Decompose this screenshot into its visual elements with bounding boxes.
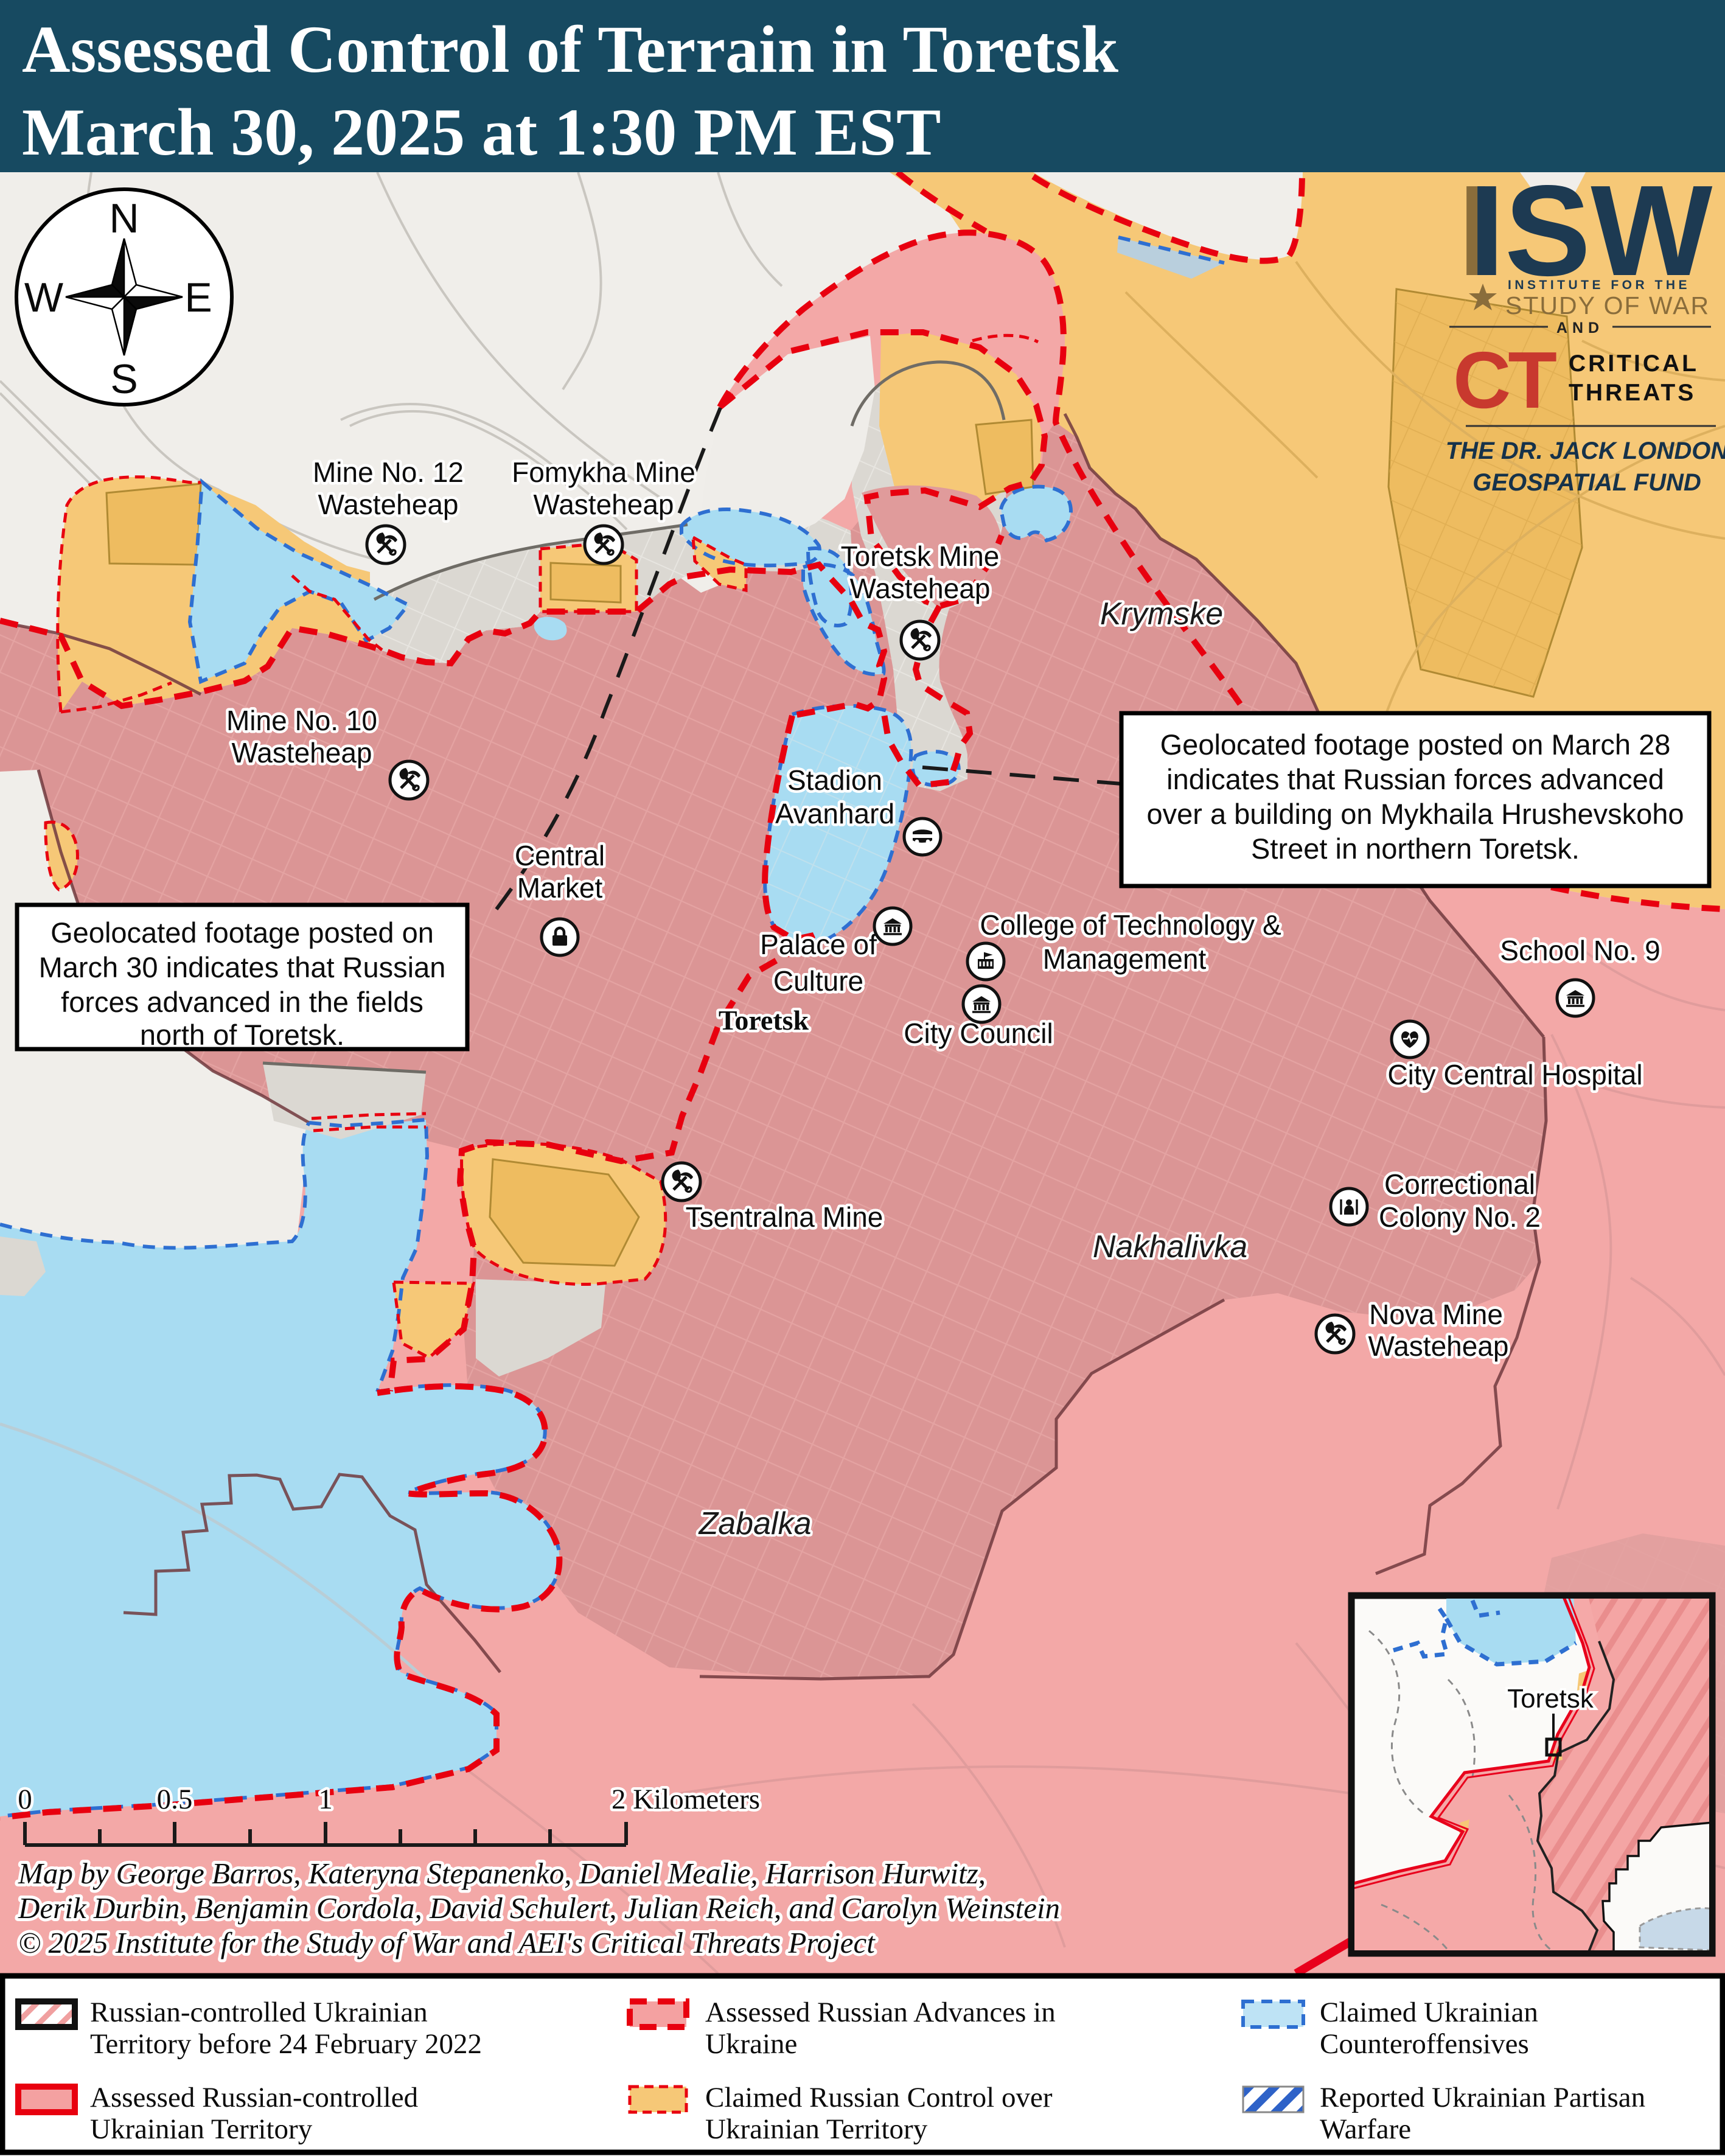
svg-text:Claimed Ukrainian: Claimed Ukrainian	[1320, 1997, 1538, 2028]
svg-text:Geolocated footage posted on M: Geolocated footage posted on March 28	[1160, 728, 1671, 761]
svg-text:Fomykha Mine: Fomykha Mine	[512, 456, 695, 488]
svg-text:GEOSPATIAL FUND: GEOSPATIAL FUND	[1472, 469, 1701, 496]
svg-text:Avanhard: Avanhard	[775, 798, 894, 829]
svg-text:Market: Market	[517, 872, 603, 904]
svg-text:Derik Durbin, Benjamin Cordola: Derik Durbin, Benjamin Cordola, David Sc…	[18, 1891, 1060, 1925]
svg-text:Warfare: Warfare	[1320, 2113, 1411, 2145]
svg-text:Assessed Russian Advances in: Assessed Russian Advances in	[705, 1997, 1056, 2028]
svg-text:© 2025 Institute for the Study: © 2025 Institute for the Study of War an…	[18, 1926, 876, 1959]
svg-text:Management: Management	[1043, 943, 1207, 975]
svg-text:CRITICAL: CRITICAL	[1569, 351, 1699, 377]
svg-text:Territory before 24 February 2: Territory before 24 February 2022	[90, 2028, 482, 2060]
svg-text:Reported Ukrainian Partisan: Reported Ukrainian Partisan	[1320, 2082, 1645, 2113]
svg-text:March 30 indicates that Russia: March 30 indicates that Russian	[39, 951, 446, 983]
svg-text:N: N	[109, 195, 139, 242]
svg-text:Wasteheap: Wasteheap	[534, 489, 674, 520]
svg-text:City Central Hospital: City Central Hospital	[1387, 1059, 1642, 1090]
svg-text:Zabalka: Zabalka	[698, 1506, 812, 1541]
svg-text:Ukrainian Territory: Ukrainian Territory	[705, 2113, 928, 2145]
svg-text:2 Kilometers: 2 Kilometers	[612, 1784, 760, 1815]
svg-text:W: W	[24, 274, 63, 321]
svg-text:Krymske: Krymske	[1100, 596, 1223, 632]
svg-text:S: S	[110, 356, 138, 402]
svg-text:1: 1	[318, 1784, 333, 1815]
svg-text:0: 0	[18, 1784, 32, 1815]
svg-text:Claimed Russian Control over: Claimed Russian Control over	[705, 2082, 1053, 2113]
svg-text:Mine No. 12: Mine No. 12	[313, 456, 464, 488]
svg-text:March 30, 2025 at 1:30 PM EST: March 30, 2025 at 1:30 PM EST	[22, 95, 941, 169]
svg-text:Ukraine: Ukraine	[705, 2028, 797, 2060]
svg-text:THREATS: THREATS	[1569, 380, 1696, 406]
svg-text:AND: AND	[1556, 319, 1604, 337]
svg-text:Wasteheap: Wasteheap	[850, 573, 991, 604]
svg-text:over a building on Mykhaila Hr: over a building on Mykhaila Hrushevskoho	[1146, 798, 1684, 830]
svg-text:Central: Central	[515, 840, 605, 871]
svg-text:INSTITUTE FOR THE: INSTITUTE FOR THE	[1508, 278, 1690, 292]
svg-text:Street in northern Toretsk.: Street in northern Toretsk.	[1251, 832, 1580, 865]
svg-text:Mine No. 10: Mine No. 10	[226, 705, 377, 736]
svg-text:Counteroffensives: Counteroffensives	[1320, 2028, 1529, 2060]
svg-text:north of Toretsk.: north of Toretsk.	[140, 1019, 344, 1051]
svg-text:Tsentralna Mine: Tsentralna Mine	[686, 1201, 883, 1233]
svg-text:School No. 9: School No. 9	[1500, 935, 1660, 966]
svg-text:Culture: Culture	[773, 965, 863, 997]
svg-text:Toretsk Mine: Toretsk Mine	[841, 540, 1000, 572]
svg-text:Assessed Russian-controlled: Assessed Russian-controlled	[90, 2082, 418, 2113]
svg-text:Ukrainian Territory: Ukrainian Territory	[90, 2113, 313, 2145]
svg-text:Correctional: Correctional	[1384, 1168, 1535, 1200]
svg-text:Toretsk: Toretsk	[719, 1005, 809, 1036]
svg-text:Palace of: Palace of	[760, 929, 877, 960]
svg-text:Colony No. 2: Colony No. 2	[1379, 1201, 1541, 1233]
svg-text:Wasteheap: Wasteheap	[232, 737, 372, 769]
svg-text:Wasteheap: Wasteheap	[318, 489, 459, 520]
svg-text:STUDY OF WAR: STUDY OF WAR	[1505, 291, 1710, 319]
svg-text:Wasteheap: Wasteheap	[1368, 1330, 1509, 1362]
svg-text:THE DR. JACK LONDON: THE DR. JACK LONDON	[1446, 438, 1725, 464]
svg-text:Russian-controlled Ukrainian: Russian-controlled Ukrainian	[90, 1997, 428, 2028]
svg-text:Geolocated footage posted on: Geolocated footage posted on	[51, 916, 434, 949]
svg-text:E: E	[184, 274, 212, 321]
svg-text:Toretsk: Toretsk	[1507, 1684, 1594, 1714]
svg-text:Map by George Barros, Kateryna: Map by George Barros, Kateryna Stepanenk…	[18, 1857, 986, 1890]
svg-text:indicates that Russian forces: indicates that Russian forces advanced	[1166, 763, 1664, 795]
svg-text:forces advanced in the fields: forces advanced in the fields	[61, 986, 423, 1018]
svg-text:Assessed Control of Terrain in: Assessed Control of Terrain in Toretsk	[22, 12, 1119, 86]
svg-text:CT: CT	[1453, 335, 1556, 425]
svg-text:Stadion: Stadion	[787, 764, 882, 796]
svg-text:Nova Mine: Nova Mine	[1369, 1299, 1503, 1330]
svg-text:Nakhalivka: Nakhalivka	[1093, 1229, 1247, 1265]
svg-text:College of Technology &: College of Technology &	[980, 909, 1281, 941]
svg-text:0.5: 0.5	[157, 1784, 193, 1815]
